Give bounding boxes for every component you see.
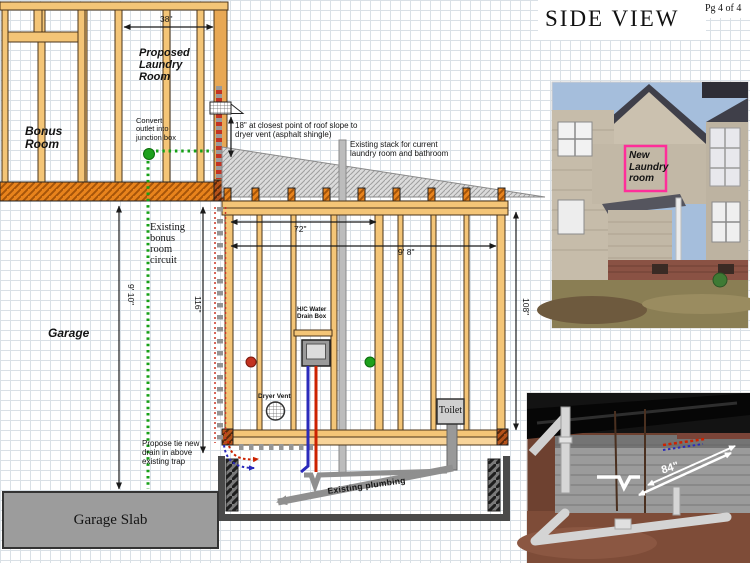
label-garage: Garage bbox=[48, 327, 89, 340]
label-garage-slab: Garage Slab bbox=[3, 512, 218, 529]
note-propose-tie: Propose tie new drain in above existing … bbox=[142, 440, 199, 466]
pier-left bbox=[226, 459, 238, 511]
outlet-red-icon bbox=[246, 357, 256, 367]
cold-water-line bbox=[301, 366, 308, 472]
page-number: Pg 4 of 4 bbox=[705, 3, 741, 14]
dim-9-10: 9' 10" bbox=[126, 284, 135, 305]
note-convert-outlet: Convert outlet into junction box bbox=[136, 117, 176, 142]
note-hc-water-box: H/C Water Drain Box bbox=[297, 306, 326, 320]
note-existing-circuit: Existing bonus room circuit bbox=[150, 222, 185, 266]
note-existing-stack: Existing stack for current laundry room … bbox=[350, 141, 470, 159]
house-photo bbox=[537, 82, 750, 328]
junction-box-icon bbox=[144, 149, 155, 160]
dim-108: 108" bbox=[521, 298, 530, 315]
dim-72: 72" bbox=[294, 225, 306, 234]
label-toilet: Toilet bbox=[437, 405, 464, 416]
dryer-vent-cap-icon bbox=[210, 102, 243, 114]
page-title: SIDE VIEW bbox=[545, 6, 679, 31]
photo-caption-new-laundry: New Laundry room bbox=[629, 150, 668, 185]
upper-wall-framing bbox=[0, 2, 228, 182]
note-vent-clearance: 18" at closest point of roof slope to dr… bbox=[235, 122, 375, 140]
new-room-framing bbox=[222, 201, 508, 445]
crawlspace-photo bbox=[517, 393, 750, 563]
side-view-plan-page: SIDE VIEW Pg 4 of 4 Proposed Laundry Roo… bbox=[0, 0, 750, 563]
existing-wall-strip bbox=[215, 207, 226, 443]
existing-stack-pipe bbox=[339, 140, 346, 475]
outlet-green-icon bbox=[365, 357, 375, 367]
dim-38: 38" bbox=[160, 15, 172, 24]
pier-right bbox=[488, 459, 500, 511]
bonus-floor-band bbox=[0, 182, 216, 201]
dryer-vent-duct-icon bbox=[267, 402, 285, 420]
note-dryer-vent: Dryer Vent bbox=[258, 393, 291, 400]
label-proposed-laundry-room: Proposed Laundry Room bbox=[139, 47, 190, 83]
dim-116: 116" bbox=[193, 296, 202, 313]
hc-water-drain-box bbox=[302, 340, 330, 366]
label-bonus-room: Bonus Room bbox=[25, 125, 62, 151]
rim-block-right bbox=[497, 429, 508, 445]
dim-9-8: 9' 8" bbox=[398, 248, 414, 257]
